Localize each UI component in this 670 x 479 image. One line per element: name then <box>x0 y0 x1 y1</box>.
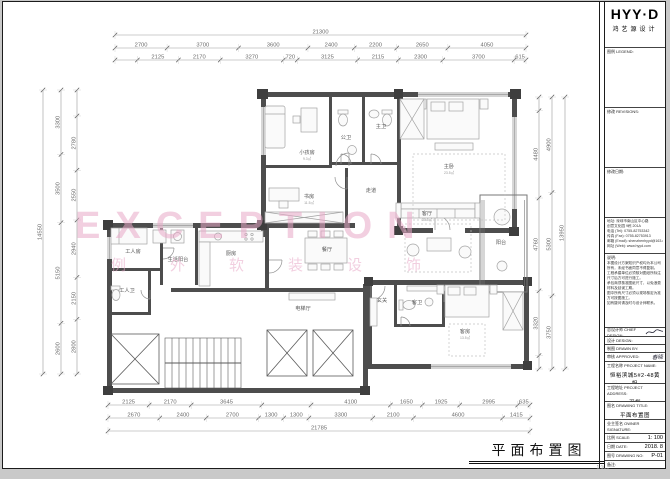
dimension-text: 1650 <box>400 400 413 406</box>
master-bed <box>418 99 488 150</box>
dimension-text: 2150 <box>72 292 78 305</box>
caption-title: 平面布置图 <box>469 440 609 462</box>
lobby-console <box>289 293 335 300</box>
dimension-text: 1415 <box>510 413 523 419</box>
room-label: 厨房 <box>226 249 236 257</box>
room-label: 书房 <box>304 192 314 200</box>
dimension-text: 3645 <box>220 400 233 406</box>
chief-design-row: 总设计师 CHIEF DESIGN: <box>605 328 665 337</box>
room-label: 客厅 <box>422 209 432 217</box>
scale-label: 比例 SCALE: <box>607 435 630 441</box>
project-name-section: 工程名称 PROJECT NAME: 恒裕滨城5#2-48黄姐 <box>605 362 665 384</box>
revisions-label: 修改 REVISIONS: <box>607 109 663 115</box>
dimension-text: 3300 <box>56 116 62 129</box>
core <box>111 330 353 388</box>
dimension-text: 3700 <box>196 43 209 49</box>
dimension-text: 2995 <box>482 400 495 406</box>
study-cabinet <box>265 212 343 223</box>
room-label: 客房 <box>460 327 470 335</box>
date-row: 日期 DATE: 2018. 8 <box>605 443 665 452</box>
room-label: 电梯厅 <box>295 304 311 312</box>
contact-section: 地址: 深圳市南山区中心路创意文化园 9栋 201A电话 (Tel): 0755… <box>605 218 665 254</box>
drawn-by-label: 制图 DRAWN BY: <box>607 346 638 352</box>
scale-row: 比例 SCALE: 1: 100 <box>605 434 665 443</box>
dimension-text: 2300 <box>414 55 427 61</box>
dimension-text: 635 <box>519 400 529 406</box>
sofa <box>396 203 480 218</box>
dimension-text: 5150 <box>56 267 62 280</box>
furniture <box>111 99 523 330</box>
extra-row: 备注: <box>605 461 665 468</box>
dimension-text: 3300 <box>334 413 347 419</box>
dimension-text: 2650 <box>416 43 429 49</box>
room-label: 走道 <box>366 186 376 194</box>
drawing-caption: 平面布置图 1:100 <box>469 440 609 471</box>
approved-row: 审核 APPROVED: 春晓 <box>605 353 665 362</box>
legend-label: 图例 LEGEND: <box>607 49 663 55</box>
room-label: 玄关 <box>377 296 387 304</box>
dimension-text: 1925 <box>435 400 448 406</box>
note-line: 如有疑问请及时与设计师联系。 <box>607 301 663 306</box>
dimension-text: 21300 <box>312 30 328 36</box>
dimension-text: 2125 <box>151 55 164 61</box>
dimension-text: 14550 <box>38 224 44 240</box>
room-label: 工人卫 <box>119 287 135 294</box>
room-label: 主卫 <box>376 122 386 130</box>
drawing-title-value: 平面布置图 <box>607 411 663 419</box>
caption-underline <box>469 463 609 464</box>
dimension-text: 2670 <box>127 413 140 419</box>
toilet-public <box>338 110 357 155</box>
dimension-text: 1300 <box>265 413 278 419</box>
drawing-no-value: P-01 <box>651 453 663 459</box>
contact-line: 网址 (Web): www.hyyd.com <box>607 244 663 249</box>
room-label: 工人房 <box>125 247 141 255</box>
dimension-text: 2170 <box>193 55 206 61</box>
dimension-text: 2200 <box>369 43 382 49</box>
dimension-text: 4900 <box>547 138 553 151</box>
project-address-label: 工程地址 PROJECT ADDRESS: <box>607 385 663 396</box>
dimension-text: 13950 <box>560 225 566 241</box>
dimension-text: 2170 <box>164 400 177 406</box>
guest-bed <box>437 285 497 317</box>
approved-label: 审核 APPROVED: <box>607 354 639 360</box>
room-area-label: 11.5㎡ <box>304 200 314 205</box>
dimension-text: 4600 <box>452 413 465 419</box>
dimension-text: 2400 <box>177 413 190 419</box>
dimension-text: 3750 <box>547 326 553 339</box>
room-label: 客卫 <box>412 298 422 306</box>
approved-signature: 春晓 <box>652 353 664 361</box>
dimension-text: 720 <box>285 55 295 61</box>
owner-signature-label: 业主签名 OWNER SIGNATURE: <box>607 421 663 432</box>
elevator-shaft <box>313 330 353 376</box>
dimension-text: 2125 <box>122 400 135 406</box>
project-name-label: 工程名称 PROJECT NAME: <box>607 363 663 369</box>
drawn-by-row: 制图 DRAWN BY: <box>605 345 665 353</box>
room-label: 阳台 <box>496 238 506 246</box>
room-area-label: 23.5㎡ <box>444 170 455 175</box>
dimension-text: 2700 <box>226 413 239 419</box>
dimension-text: 3270 <box>245 55 258 61</box>
dimension-text: 4760 <box>534 238 540 251</box>
logo-sub: 鸿艺源设计 <box>607 24 663 33</box>
service-appliances <box>153 230 184 243</box>
drawing-title-label: 图名 DRAWING TITLE: <box>607 403 663 409</box>
room-label: 小孩房 <box>299 148 315 156</box>
shaft <box>111 334 159 384</box>
coffee-table <box>427 238 451 251</box>
dimension-text: 3700 <box>472 55 485 61</box>
guest-wardrobe <box>503 292 523 330</box>
logo-main: HYY·D <box>607 6 663 22</box>
dimension-text: 5300 <box>547 238 553 251</box>
drawing-title-section: 图名 DRAWING TITLE: 平面布置图 <box>605 402 665 420</box>
dimension-text: 2940 <box>72 242 78 255</box>
dimension-text: 3600 <box>267 43 280 49</box>
room-area-label: 30.5㎡ <box>422 217 433 222</box>
dimension-text: 2550 <box>72 189 78 202</box>
dimension-text: 2600 <box>56 342 62 355</box>
design-label: 设计 DESIGN: <box>607 338 633 344</box>
legend-section: 图例 LEGEND: <box>605 48 665 108</box>
design-row: 设计 DESIGN: <box>605 337 665 345</box>
chief-design-label: 总设计师 CHIEF DESIGN: <box>607 328 645 337</box>
dimension-text: 2400 <box>325 43 338 49</box>
dimension-text: 615 <box>515 55 525 61</box>
date-value: 2018. 8 <box>645 444 663 450</box>
dimension-text: 2700 <box>135 43 148 49</box>
dimension-text: 3500 <box>56 182 62 195</box>
owner-signature-section: 业主签名 OWNER SIGNATURE: <box>605 420 665 434</box>
chief-signature <box>645 328 663 336</box>
revision-date-label: 修改日期: <box>607 169 663 175</box>
dimension-text: 21785 <box>311 426 327 432</box>
dimension-text: 4050 <box>480 43 493 49</box>
dimension-text: 2100 <box>387 413 400 419</box>
room-label: 公卫 <box>341 134 351 141</box>
drawing-sheet: 2130027003700360024002200265040502125217… <box>2 1 666 469</box>
kids-bed <box>265 106 285 148</box>
dimension-text: 4480 <box>534 148 540 161</box>
scale-value: 1: 100 <box>648 435 663 441</box>
worker-bed <box>111 228 147 244</box>
dimension-text: 2780 <box>72 137 78 150</box>
elevator-shaft <box>267 330 307 376</box>
notes-section: 说明: 本图设计方案知识产权均为本公司所有，未经书面同意不得复制。工程承建单位必… <box>605 254 665 328</box>
floor-plan-drawing: 2130027003700360024002200265040502125217… <box>3 2 599 466</box>
dimension-text: 2800 <box>72 340 78 353</box>
dimension-text: 3125 <box>321 55 334 61</box>
title-block: HYY·D 鸿艺源设计 图例 LEGEND: 修改 REVISIONS: 修改日… <box>604 2 665 468</box>
room-label: 生活阳台 <box>168 255 189 263</box>
caption-scale: 1:100 <box>469 465 609 471</box>
project-name-value: 恒裕滨城5#2-48黄姐 <box>607 371 663 384</box>
extra-label: 备注: <box>607 462 616 468</box>
notes-lines: 本图设计方案知识产权均为本公司所有，未经书面同意不得复制。工程承建单位必须核对图… <box>607 261 663 306</box>
dimension-text: 3320 <box>534 317 540 330</box>
drawing-no-row: 图号 DRAWING NO: P-01 <box>605 452 665 461</box>
dimension-text: 1300 <box>290 413 303 419</box>
stairs <box>165 338 241 388</box>
dimension-text: 4100 <box>344 400 357 406</box>
titleblock-divider <box>599 2 600 468</box>
revision-date-section: 修改日期: <box>605 168 665 218</box>
room-label: 餐厅 <box>322 245 332 253</box>
room-label: 主卧 <box>444 162 454 170</box>
page-background: { "watermark": {"text": "EXCEPTION", "su… <box>0 0 670 479</box>
project-address-section: 工程地址 PROJECT ADDRESS: 深圳 <box>605 384 665 402</box>
room-area-label: 13.5㎡ <box>460 335 471 340</box>
study-desk <box>269 188 299 208</box>
logo: HYY·D 鸿艺源设计 <box>605 2 665 48</box>
dimension-text: 2115 <box>372 55 384 61</box>
drawing-no-label: 图号 DRAWING NO: <box>607 453 644 459</box>
date-label: 日期 DATE: <box>607 444 628 450</box>
master-wardrobe <box>400 99 424 139</box>
room-area-label: 9.3㎡ <box>303 156 312 161</box>
kitchen-counter <box>199 231 263 286</box>
kids-desk <box>293 108 317 132</box>
revisions-section: 修改 REVISIONS: <box>605 108 665 168</box>
